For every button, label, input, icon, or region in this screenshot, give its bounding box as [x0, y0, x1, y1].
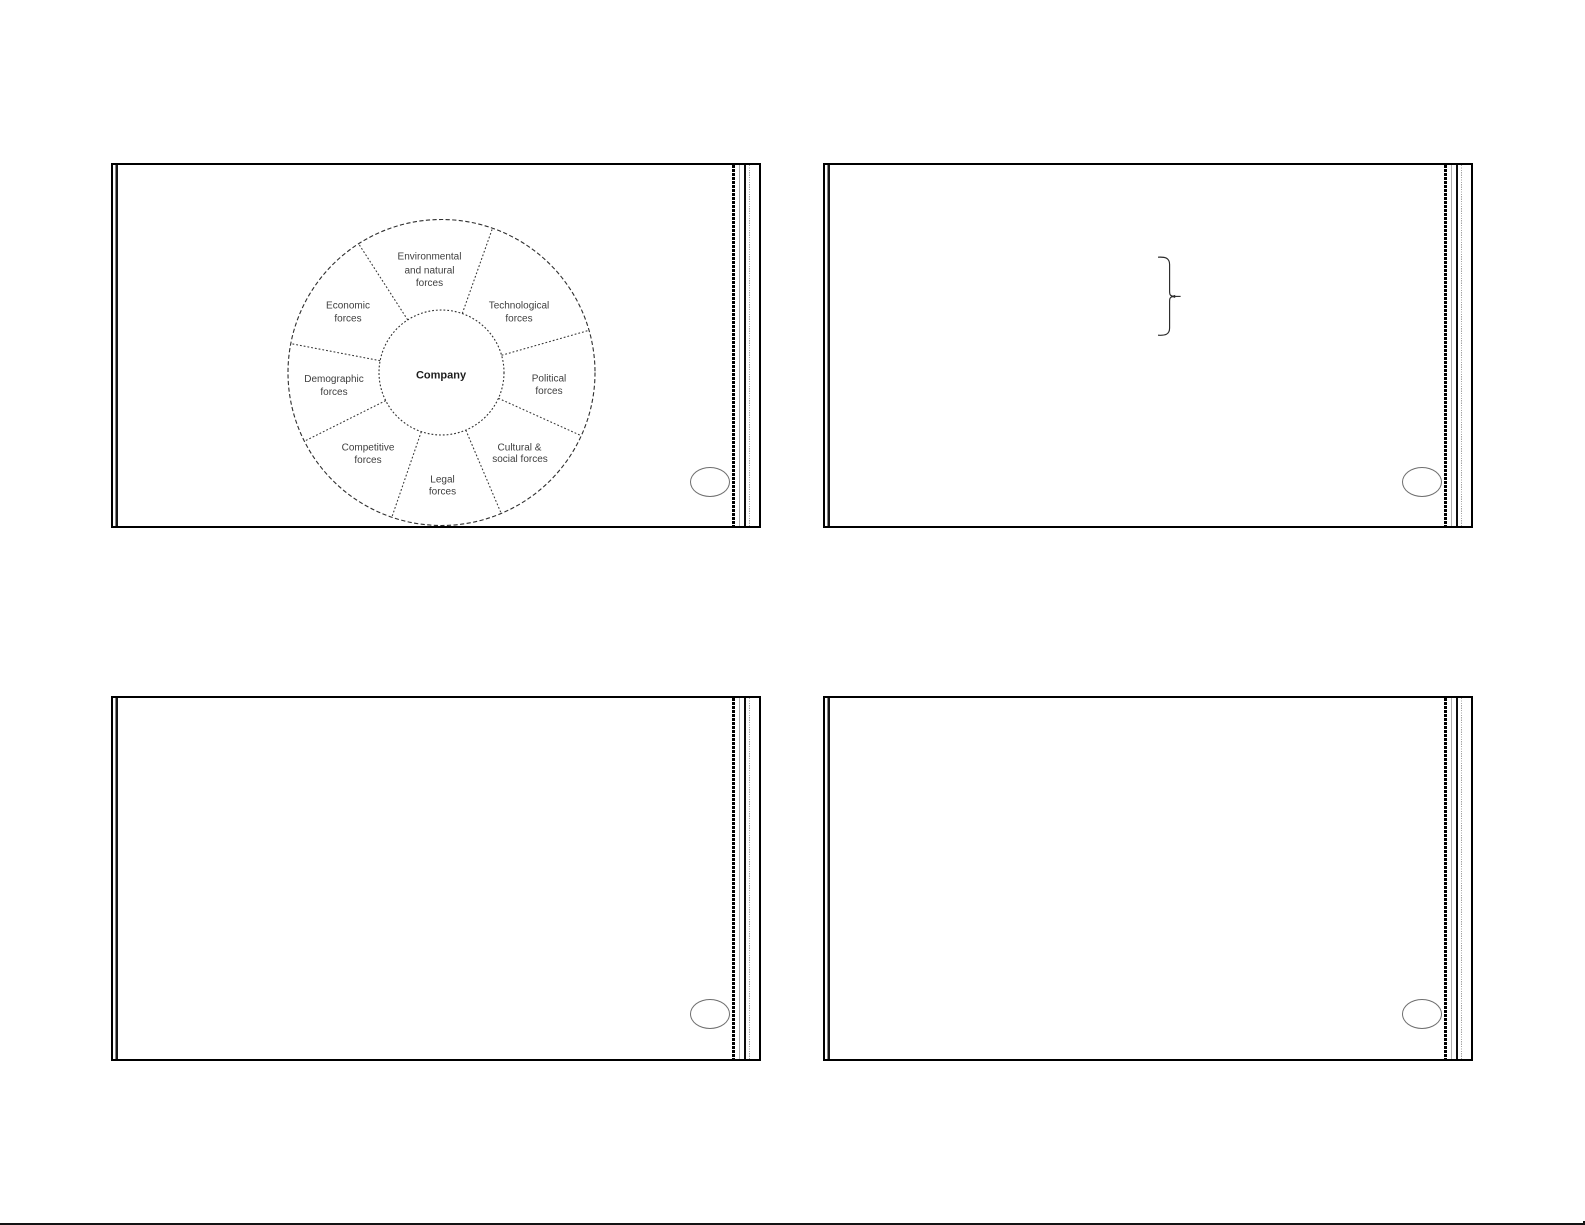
svg-text:forces: forces: [429, 487, 456, 498]
svg-text:social forces: social forces: [492, 454, 548, 465]
svg-text:Competitive: Competitive: [342, 443, 395, 454]
svg-text:Cultural &: Cultural &: [498, 443, 542, 454]
svg-text:forces: forces: [416, 278, 443, 289]
svg-text:and natural: and natural: [404, 266, 454, 277]
svg-text:Legal: Legal: [430, 475, 454, 486]
svg-text:Company: Company: [416, 370, 467, 382]
svg-text:Technological: Technological: [489, 301, 550, 312]
svg-text:forces: forces: [535, 386, 562, 397]
svg-text:Political: Political: [532, 374, 566, 385]
svg-text:forces: forces: [334, 314, 361, 325]
svg-text:Demographic: Demographic: [304, 374, 363, 385]
svg-text:forces: forces: [505, 314, 532, 325]
svg-text:forces: forces: [354, 455, 381, 466]
svg-text:Environmental: Environmental: [398, 252, 462, 263]
svg-text:Economic: Economic: [326, 301, 370, 312]
svg-text:forces: forces: [320, 387, 347, 398]
